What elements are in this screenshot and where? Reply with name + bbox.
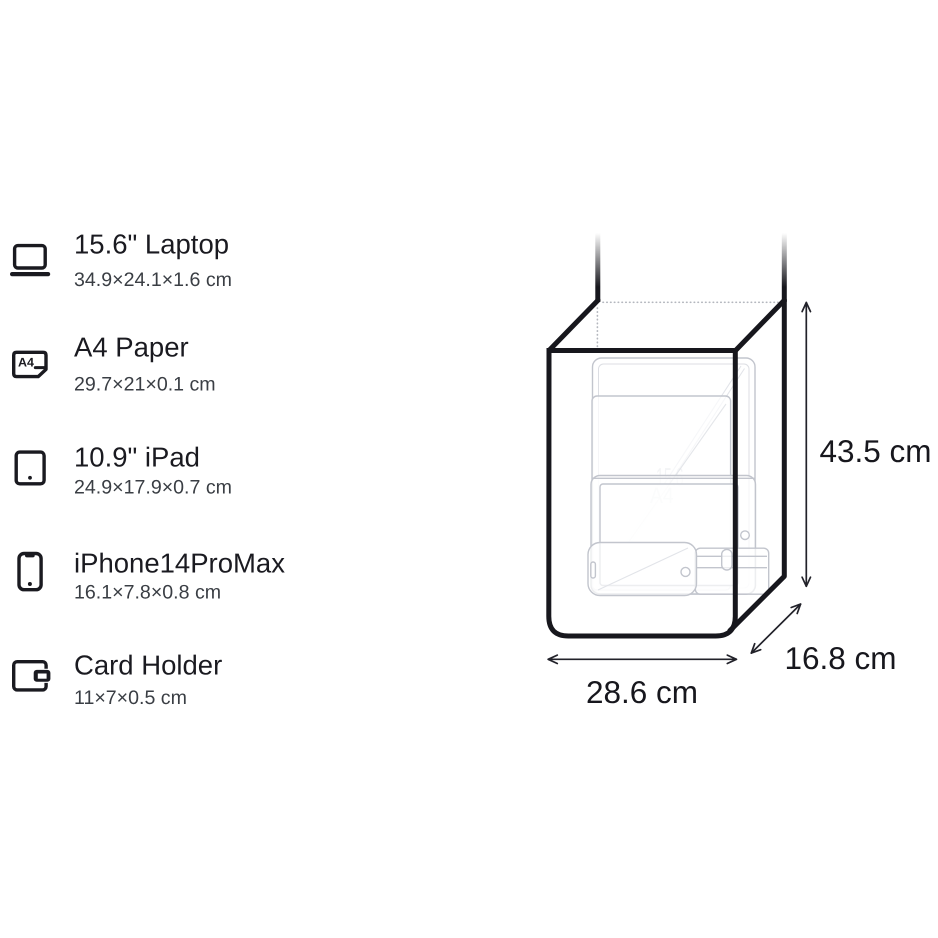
svg-text:34.9×24.1×1.6 cm: 34.9×24.1×1.6 cm [74, 269, 232, 291]
svg-text:43.5 cm: 43.5 cm [820, 433, 932, 469]
svg-text:15.6" Laptop: 15.6" Laptop [74, 228, 229, 259]
svg-text:24.9×17.9×0.7 cm: 24.9×17.9×0.7 cm [74, 477, 232, 499]
svg-text:28.6 cm: 28.6 cm [586, 674, 698, 710]
svg-text:16.1×7.8×0.8 cm: 16.1×7.8×0.8 cm [74, 582, 221, 604]
svg-text:16.8 cm: 16.8 cm [785, 640, 897, 676]
svg-text:A4: A4 [18, 356, 34, 370]
svg-text:Card Holder: Card Holder [74, 649, 222, 680]
svg-text:11×7×0.5 cm: 11×7×0.5 cm [74, 687, 187, 709]
svg-text:10.9" iPad: 10.9" iPad [74, 441, 200, 472]
svg-text:29.7×21×0.1 cm: 29.7×21×0.1 cm [74, 374, 216, 396]
svg-text:iPhone14ProMax: iPhone14ProMax [74, 547, 285, 578]
svg-text:A4 Paper: A4 Paper [74, 331, 189, 362]
